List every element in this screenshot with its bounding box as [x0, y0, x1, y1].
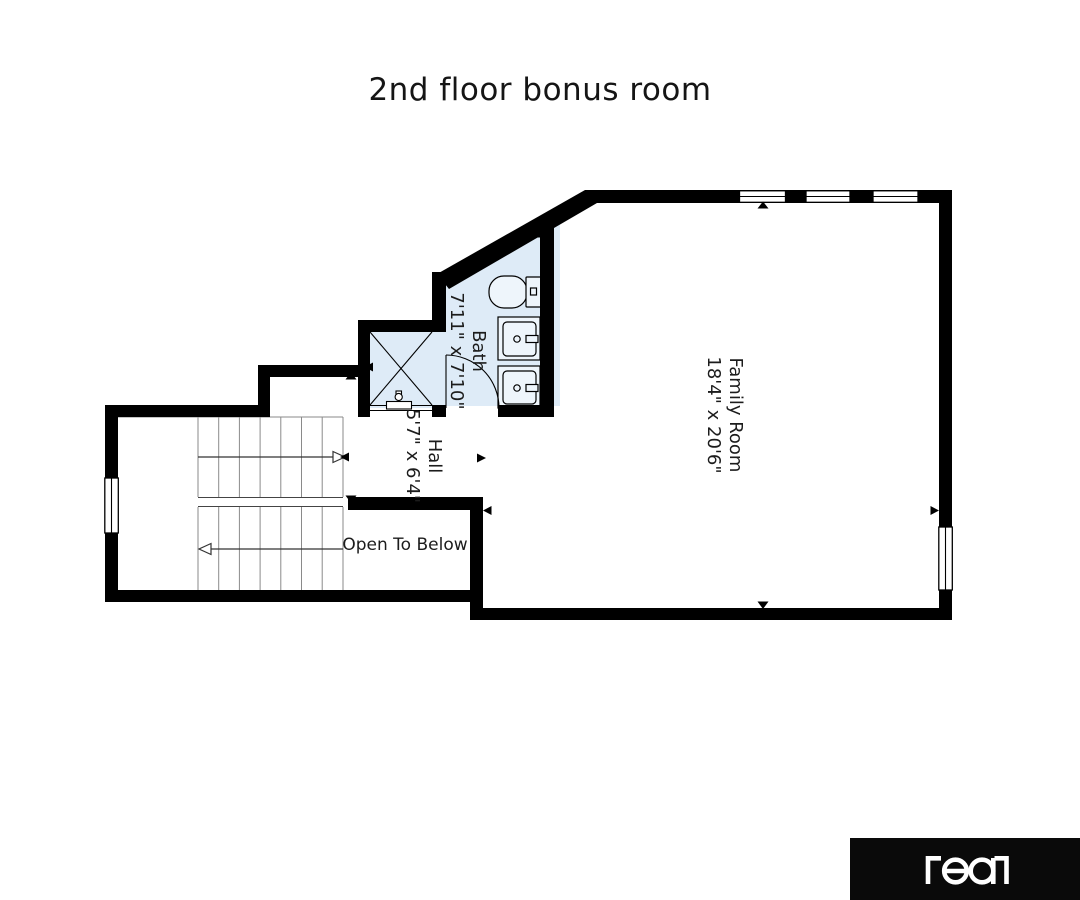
vanity-sink-icon	[498, 366, 540, 408]
family-room-label: Family Room 18'4" x 20'6"	[703, 356, 746, 473]
vanity-sink-icon	[498, 317, 540, 360]
wall-top-left	[105, 405, 270, 417]
window-top-3	[873, 191, 918, 203]
window-top-1	[740, 191, 786, 203]
floor-plan-canvas: 2nd floor bonus room	[0, 0, 1080, 900]
family-room-dims: 18'4" x 20'6"	[703, 356, 724, 473]
stair-arrow-right	[198, 452, 345, 463]
marker-left-icon	[340, 453, 349, 462]
window-left	[105, 478, 119, 533]
real-logo	[850, 838, 1080, 900]
hall-name: Hall	[424, 439, 445, 474]
floor-plan-page: 2nd floor bonus room	[0, 0, 1080, 900]
window-top-2	[806, 191, 850, 203]
family-room-name: Family Room	[725, 358, 746, 473]
wall-bath-left	[432, 272, 446, 332]
marker-left-icon	[483, 506, 492, 515]
marker-right-icon	[931, 506, 940, 515]
stair-arrow-left	[199, 544, 343, 555]
marker-right-icon	[477, 454, 486, 463]
arrowhead-left-icon	[199, 544, 211, 555]
hall-label: Hall 5'7" x 6'4"	[402, 409, 445, 503]
window-right	[939, 527, 953, 590]
open-to-below-label: Open To Below	[342, 535, 467, 555]
staircase	[118, 417, 345, 590]
toilet-icon	[489, 276, 541, 308]
wall-bottom-left	[105, 590, 483, 602]
page-title: 2nd floor bonus room	[368, 72, 711, 108]
wall-bottom-family	[470, 608, 952, 620]
wall-bath-right	[540, 220, 554, 417]
hall-dims: 5'7" x 6'4"	[402, 409, 423, 503]
marker-down-icon	[758, 602, 769, 610]
bath-name: Bath	[468, 330, 489, 372]
wall-bath-bottom-a	[432, 405, 446, 417]
bath-dims: 7'11" x 7'10"	[446, 292, 467, 409]
